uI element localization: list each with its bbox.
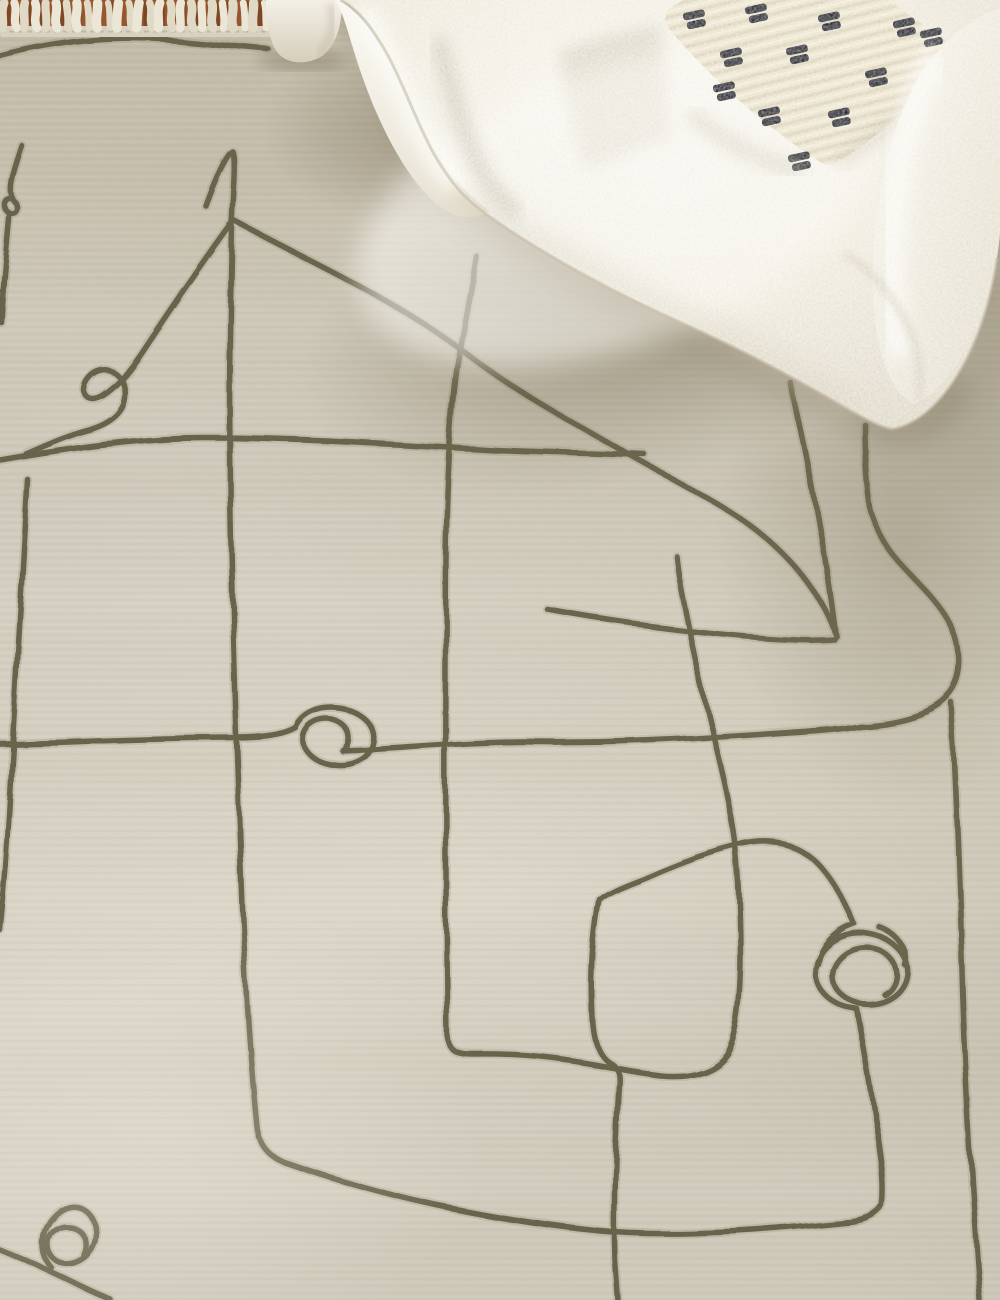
fringe-tassel [76, 3, 77, 28]
fringe-tassel [2, 3, 4, 28]
fringe-tassel [129, 3, 132, 28]
fringe-tassel [45, 3, 46, 28]
fringe-tassel [137, 3, 140, 28]
fringe-tassel [252, 3, 253, 28]
fringe-tassel [117, 3, 119, 28]
fringe-tassel [243, 3, 245, 28]
fringe-tassel [191, 3, 193, 28]
fringe-tassel [96, 3, 97, 28]
fringe-tassel [158, 3, 160, 28]
fringe-tassel [35, 3, 37, 28]
fringe-tassel [180, 3, 181, 28]
fringe-tassel [14, 3, 16, 28]
fringe-tassel [150, 3, 153, 28]
fringe-tassel [56, 3, 58, 28]
fringe-tassel [87, 3, 89, 28]
fringe-tassel [212, 3, 214, 28]
fringe-tassel [232, 3, 233, 28]
fringe-tassel [66, 3, 68, 28]
white-vessel [258, 0, 346, 70]
fringe-tassel [108, 3, 110, 28]
scene-photo [0, 0, 1000, 1300]
fringe-tassel [222, 3, 224, 28]
scene [0, 0, 1000, 1300]
fringe-tassel [170, 3, 172, 28]
fringe-tassel [24, 3, 25, 28]
fringe-tassel [264, 3, 266, 28]
fringe-tassel [201, 3, 202, 28]
